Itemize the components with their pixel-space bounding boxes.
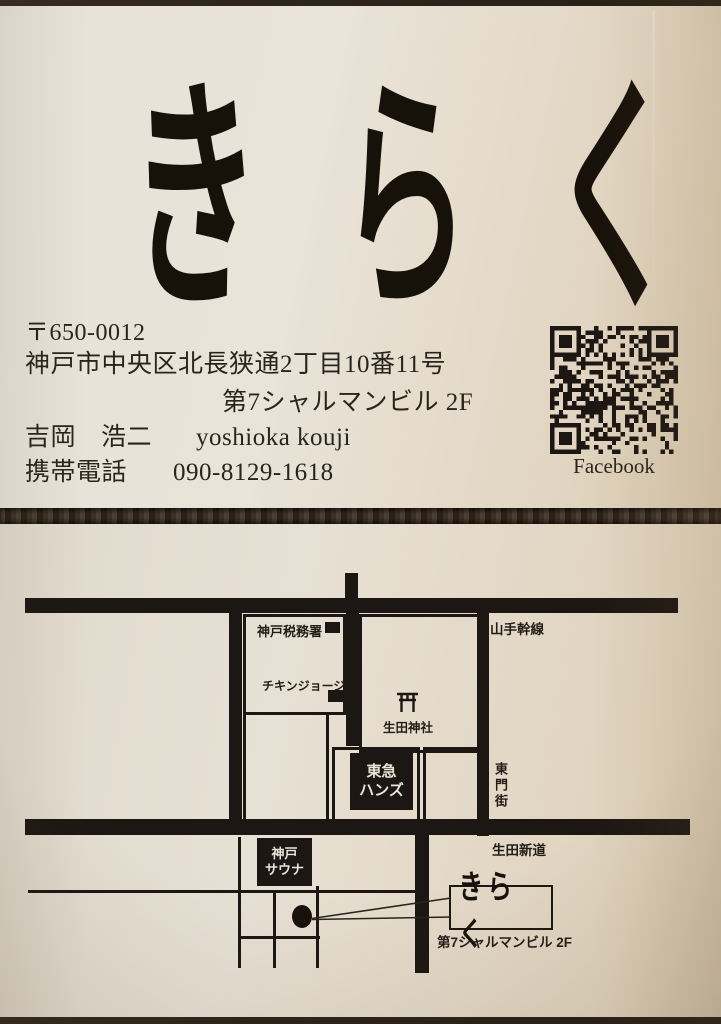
road-yamate-kansen [25, 598, 678, 613]
logo-char-ku: く [550, 78, 680, 326]
qr-code-svg [548, 326, 680, 454]
logo-char-ra: ら [340, 78, 470, 326]
label-ikuta-shindo: 生田新道 [492, 839, 546, 859]
block-east-small [423, 747, 480, 825]
address-line1: 神戸市中央区北長狭通2丁目10番11号 [25, 344, 446, 380]
location-dot [292, 905, 312, 928]
label-tokyu-hands-line1: 東急 [350, 762, 413, 781]
card-seam [0, 508, 721, 524]
road-south-lane-2 [238, 936, 320, 939]
postal-code: 〒650-0012 [25, 312, 146, 347]
road-north-stub [345, 573, 358, 600]
card-map: 山手幹線 東門街 生田新道 神戸税務署 チキンジョージ 生田神社 東急 ハンズ … [0, 524, 721, 1017]
label-kobe-sauna-line2: サウナ [257, 862, 312, 878]
road-center-vertical [346, 613, 359, 746]
phone-row: 携帯電話 090-8129-1618 [25, 452, 334, 488]
card-crease [652, 10, 655, 310]
building-square-icon-tax-office [325, 622, 340, 633]
address-line2: 第7シャルマンビル 2F [222, 382, 473, 418]
phone-label: 携帯電話 [25, 452, 127, 488]
label-tokyu-hands-line2: ハンズ [350, 781, 413, 800]
label-yamate-kansen: 山手幹線 [490, 618, 544, 638]
phone-number: 090-8129-1618 [173, 459, 334, 487]
qr-code-icon [548, 326, 680, 454]
owner-name-row: 吉岡 浩二 yoshioka kouji [25, 417, 351, 453]
shop-callout-box: きらく [449, 885, 553, 930]
label-kobe-sauna-line1: 神戸 [257, 846, 312, 862]
label-tax-office: 神戸税務署 [257, 621, 322, 640]
tokyu-hands-box: 東急 ハンズ [350, 753, 413, 810]
owner-name-romaji: yoshioka kouji [196, 424, 351, 452]
building-square-icon-chicken-george [328, 690, 343, 702]
road-south-alley-2 [273, 890, 276, 968]
label-shop-building: 第7シャルマンビル 2F [437, 931, 572, 951]
business-card-photo: き ら く 〒650-0012 神戸市中央区北長狭通2丁目10番11号 第7シャ… [0, 0, 721, 1024]
shop-logo-calligraphy: き ら く [90, 64, 620, 340]
road-west-vertical [229, 613, 242, 835]
road-south-alley-1 [238, 837, 241, 968]
owner-given-name: 浩二 [101, 417, 152, 453]
label-ikuta-shrine: 生田神社 [383, 717, 433, 736]
card-front: き ら く 〒650-0012 神戸市中央区北長狭通2丁目10番11号 第7シャ… [0, 6, 721, 508]
logo-char-ki: き [130, 78, 260, 326]
torii-icon [396, 691, 419, 713]
owner-family-name: 吉岡 [25, 417, 76, 453]
block-southwest [243, 712, 329, 825]
label-higashimon-gai: 東門街 [491, 762, 510, 810]
kobe-sauna-box: 神戸 サウナ [257, 838, 312, 886]
qr-caption: Facebook [540, 454, 688, 479]
callout-pointer-lines [310, 893, 455, 923]
